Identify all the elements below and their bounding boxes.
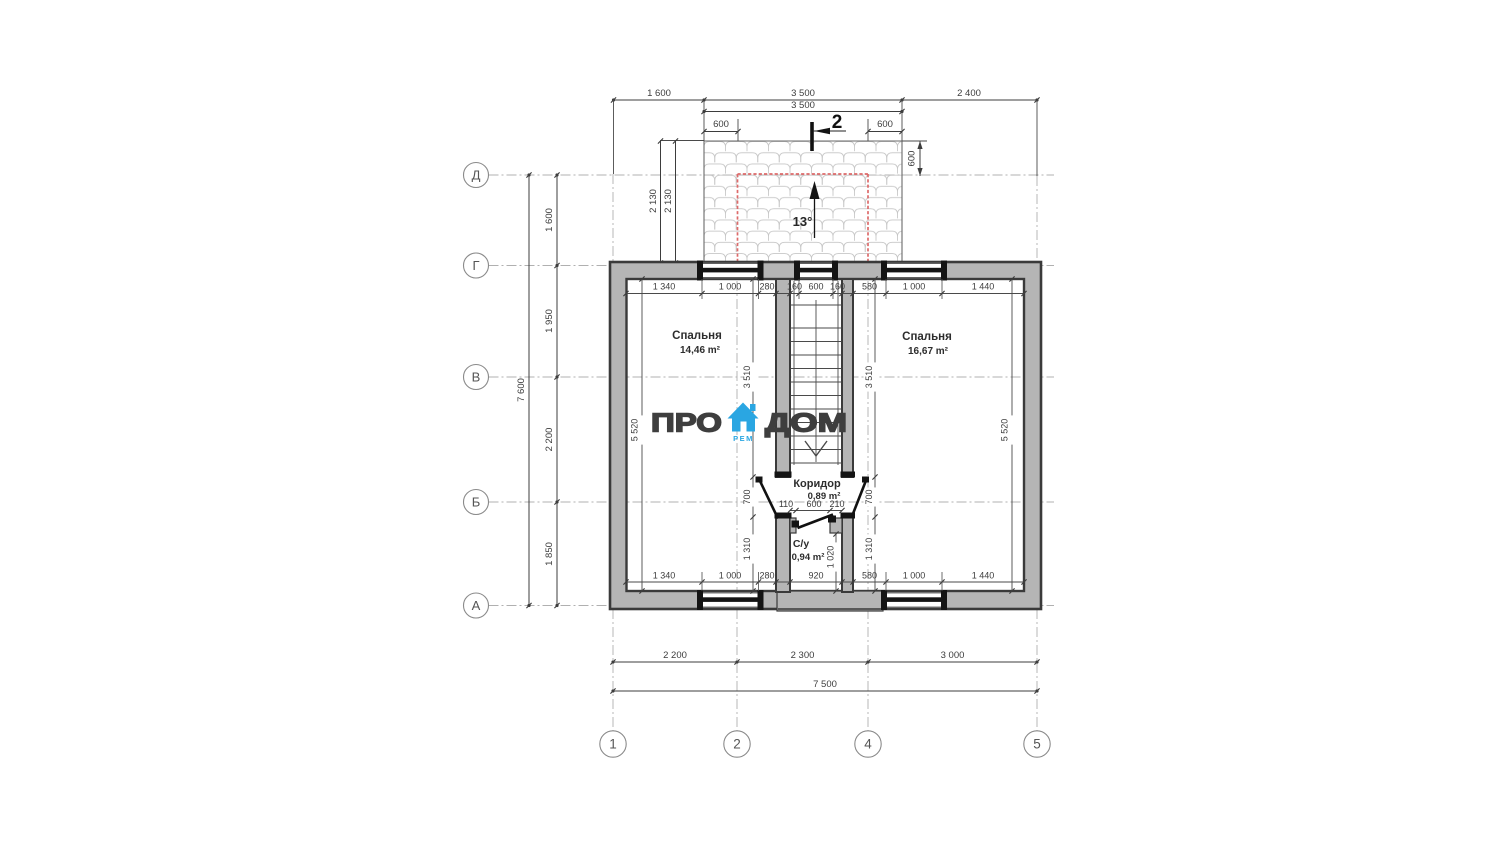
svg-text:16,67 m²: 16,67 m² xyxy=(908,346,949,357)
svg-text:1 850: 1 850 xyxy=(544,542,555,566)
svg-text:110: 110 xyxy=(779,499,793,509)
svg-text:1 000: 1 000 xyxy=(903,571,926,581)
svg-text:РЕМ: РЕМ xyxy=(733,434,754,443)
svg-text:2 300: 2 300 xyxy=(791,650,815,661)
svg-text:2 200: 2 200 xyxy=(663,650,687,661)
svg-text:С/у: С/у xyxy=(793,538,810,550)
svg-text:1 440: 1 440 xyxy=(972,282,995,292)
svg-text:3 510: 3 510 xyxy=(742,366,752,389)
svg-text:ДОМ: ДОМ xyxy=(765,408,847,438)
svg-text:3 510: 3 510 xyxy=(864,366,874,389)
svg-text:1 000: 1 000 xyxy=(719,282,742,292)
svg-text:14,46 m²: 14,46 m² xyxy=(680,345,721,356)
svg-text:Коридор: Коридор xyxy=(793,478,841,490)
svg-text:Спальня: Спальня xyxy=(902,331,952,343)
svg-text:1 000: 1 000 xyxy=(719,571,742,581)
svg-text:13°: 13° xyxy=(793,214,813,229)
svg-text:1 020: 1 020 xyxy=(826,546,836,569)
svg-text:1 340: 1 340 xyxy=(653,571,676,581)
svg-text:2 400: 2 400 xyxy=(957,88,981,99)
svg-text:2 130: 2 130 xyxy=(663,189,674,213)
svg-text:Г: Г xyxy=(472,258,479,273)
svg-text:3 000: 3 000 xyxy=(941,650,965,661)
svg-text:920: 920 xyxy=(808,571,823,581)
svg-text:600: 600 xyxy=(808,282,823,292)
svg-text:3 500: 3 500 xyxy=(791,88,815,99)
svg-text:160: 160 xyxy=(787,282,802,292)
svg-text:2 130: 2 130 xyxy=(648,189,659,213)
svg-text:280: 280 xyxy=(759,282,774,292)
svg-text:3 500: 3 500 xyxy=(791,100,815,111)
svg-text:1 440: 1 440 xyxy=(972,571,995,581)
svg-text:7 600: 7 600 xyxy=(516,378,527,402)
svg-text:5 520: 5 520 xyxy=(1000,419,1010,442)
svg-text:ПРО: ПРО xyxy=(651,408,722,438)
svg-text:700: 700 xyxy=(742,489,752,504)
svg-text:Б: Б xyxy=(472,495,481,510)
svg-text:280: 280 xyxy=(759,571,774,581)
svg-text:2: 2 xyxy=(733,737,741,752)
svg-text:700: 700 xyxy=(864,489,874,504)
svg-text:1 600: 1 600 xyxy=(544,208,555,232)
svg-text:В: В xyxy=(472,370,481,385)
svg-text:2 200: 2 200 xyxy=(544,428,555,452)
svg-text:0,89 m²: 0,89 m² xyxy=(808,491,841,502)
svg-text:4: 4 xyxy=(864,737,872,752)
svg-text:1: 1 xyxy=(609,737,617,752)
svg-text:7 500: 7 500 xyxy=(813,679,837,690)
svg-text:1 340: 1 340 xyxy=(653,282,676,292)
svg-text:600: 600 xyxy=(877,119,893,130)
svg-text:А: А xyxy=(472,598,481,613)
svg-text:160: 160 xyxy=(830,282,845,292)
svg-text:5: 5 xyxy=(1033,737,1041,752)
svg-text:600: 600 xyxy=(907,151,918,167)
svg-text:600: 600 xyxy=(713,119,729,130)
svg-text:0,94 m²: 0,94 m² xyxy=(792,552,825,563)
svg-text:1 310: 1 310 xyxy=(742,538,752,561)
svg-text:1 600: 1 600 xyxy=(647,88,671,99)
svg-text:Д: Д xyxy=(472,168,481,183)
svg-text:2: 2 xyxy=(832,112,843,133)
svg-text:5 520: 5 520 xyxy=(630,419,640,442)
svg-text:Спальня: Спальня xyxy=(672,330,722,342)
svg-text:1 000: 1 000 xyxy=(903,282,926,292)
svg-text:1 310: 1 310 xyxy=(864,538,874,561)
svg-text:1 950: 1 950 xyxy=(544,309,555,333)
